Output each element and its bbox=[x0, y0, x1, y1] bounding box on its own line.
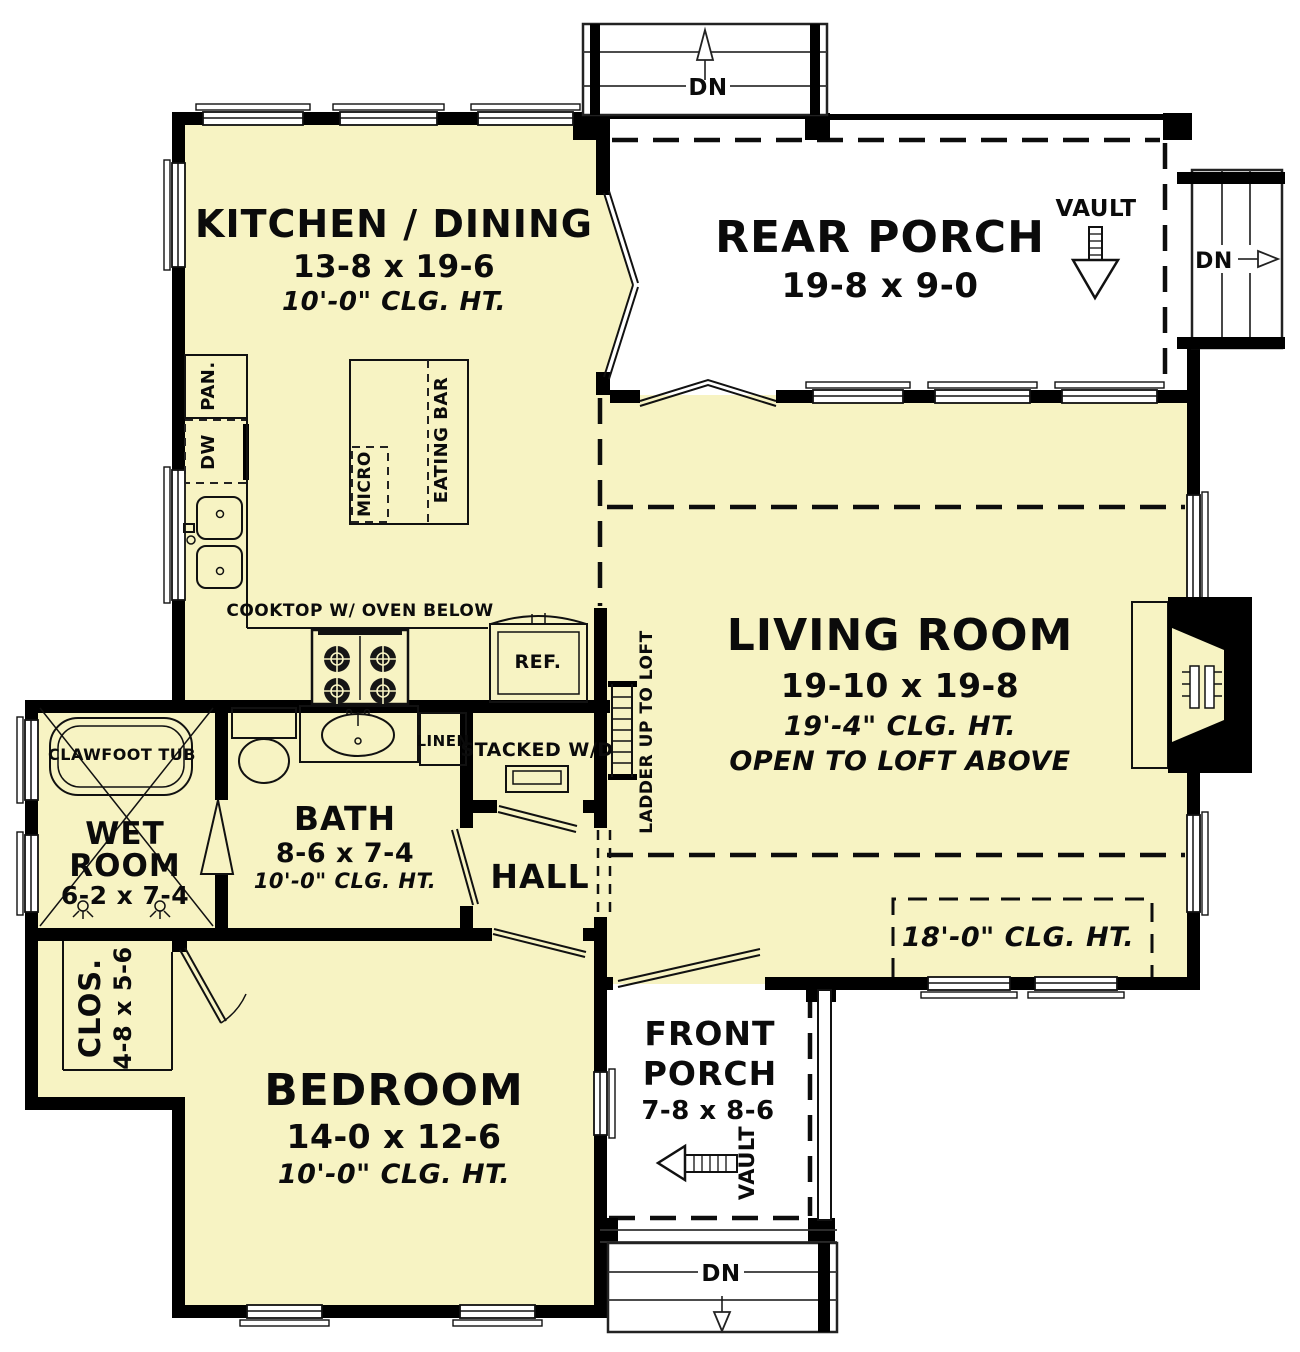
microwave-label: MICRO bbox=[355, 451, 375, 517]
kitchen-dims: 13-8 x 19-6 bbox=[293, 249, 495, 285]
window bbox=[240, 1305, 329, 1326]
window bbox=[594, 1069, 615, 1138]
floor-plan-canvas: KITCHEN / DINING 13-8 x 19-6 10'-0" CLG.… bbox=[0, 0, 1300, 1352]
pantry-label: PAN. bbox=[198, 361, 219, 410]
window bbox=[1055, 382, 1164, 403]
front-porch-vault: VAULT bbox=[735, 1126, 759, 1200]
front-porch-columns bbox=[818, 990, 831, 1220]
living-label: LIVING ROOM bbox=[727, 610, 1074, 661]
bedroom-ceiling: 10'-0" CLG. HT. bbox=[278, 1159, 510, 1190]
window bbox=[17, 717, 38, 803]
front-porch-label-1: FRONT bbox=[644, 1014, 775, 1053]
living-dims: 19-10 x 19-8 bbox=[781, 666, 1019, 705]
living-ceiling: 19'-4" CLG. HT. bbox=[784, 711, 1016, 742]
window bbox=[1187, 492, 1208, 603]
window bbox=[17, 832, 38, 915]
bath-dims: 8-6 x 7-4 bbox=[276, 838, 414, 869]
cooktop-icon bbox=[312, 630, 408, 704]
wet-room-dims: 6-2 x 7-4 bbox=[61, 881, 189, 910]
rear-porch-dims: 19-8 x 9-0 bbox=[781, 266, 978, 306]
cooktop-label: COOKTOP W/ OVEN BELOW bbox=[226, 601, 493, 621]
closet-dims: 4-8 x 5-6 bbox=[109, 946, 137, 1069]
vault-arrow-left-icon bbox=[658, 1146, 737, 1180]
bath-ceiling: 10'-0" CLG. HT. bbox=[254, 869, 436, 893]
rear-porch-label: REAR PORCH bbox=[715, 212, 1045, 263]
living-corner-ceiling: 18'-0" CLG. HT. bbox=[902, 922, 1134, 953]
window bbox=[928, 382, 1037, 403]
stacked-wd-label: STACKED W/D bbox=[460, 739, 613, 761]
clawfoot-tub-label: CLAWFOOT TUB bbox=[48, 745, 196, 764]
wet-room-label-1: WET bbox=[85, 816, 165, 852]
dishwasher-label: DW bbox=[198, 434, 219, 470]
closet-floor bbox=[31, 934, 185, 1104]
window bbox=[471, 104, 580, 125]
living-note: OPEN TO LOFT ABOVE bbox=[729, 746, 1070, 777]
window bbox=[453, 1305, 542, 1326]
rear-stairs-top bbox=[583, 24, 827, 115]
closet-label: CLOS. bbox=[73, 958, 107, 1058]
window bbox=[1187, 812, 1208, 915]
eating-bar-label: EATING BAR bbox=[431, 377, 452, 503]
rear-stairs-dn: DN bbox=[688, 75, 727, 101]
kitchen-ceiling: 10'-0" CLG. HT. bbox=[282, 287, 506, 317]
hearth bbox=[1132, 602, 1168, 768]
kitchen-label: KITCHEN / DINING bbox=[195, 202, 593, 246]
window bbox=[164, 467, 185, 603]
hall-label: HALL bbox=[490, 857, 589, 896]
window bbox=[196, 104, 310, 125]
bath-label: BATH bbox=[294, 799, 396, 838]
window bbox=[333, 104, 444, 125]
bedroom-dims: 14-0 x 12-6 bbox=[287, 1117, 502, 1156]
window bbox=[164, 160, 185, 270]
front-stairs-dn: DN bbox=[701, 1261, 740, 1287]
bedroom-label: BEDROOM bbox=[264, 1065, 524, 1116]
right-stairs-dn: DN bbox=[1195, 249, 1233, 274]
fireplace-icon bbox=[1132, 597, 1252, 773]
front-porch-dims: 7-8 x 8-6 bbox=[641, 1096, 774, 1126]
vault-arrow-down-icon bbox=[1073, 227, 1118, 298]
front-porch-label-2: PORCH bbox=[643, 1054, 778, 1093]
ladder-label: LADDER UP TO LOFT bbox=[637, 630, 657, 833]
window bbox=[921, 977, 1017, 998]
wet-room-label-2: ROOM bbox=[69, 848, 180, 884]
rear-porch-vault: VAULT bbox=[1055, 196, 1136, 222]
floor-plan: KITCHEN / DINING 13-8 x 19-6 10'-0" CLG.… bbox=[0, 0, 1300, 1352]
refrigerator-label: REF. bbox=[514, 651, 561, 673]
window bbox=[806, 382, 910, 403]
window bbox=[1028, 977, 1124, 998]
